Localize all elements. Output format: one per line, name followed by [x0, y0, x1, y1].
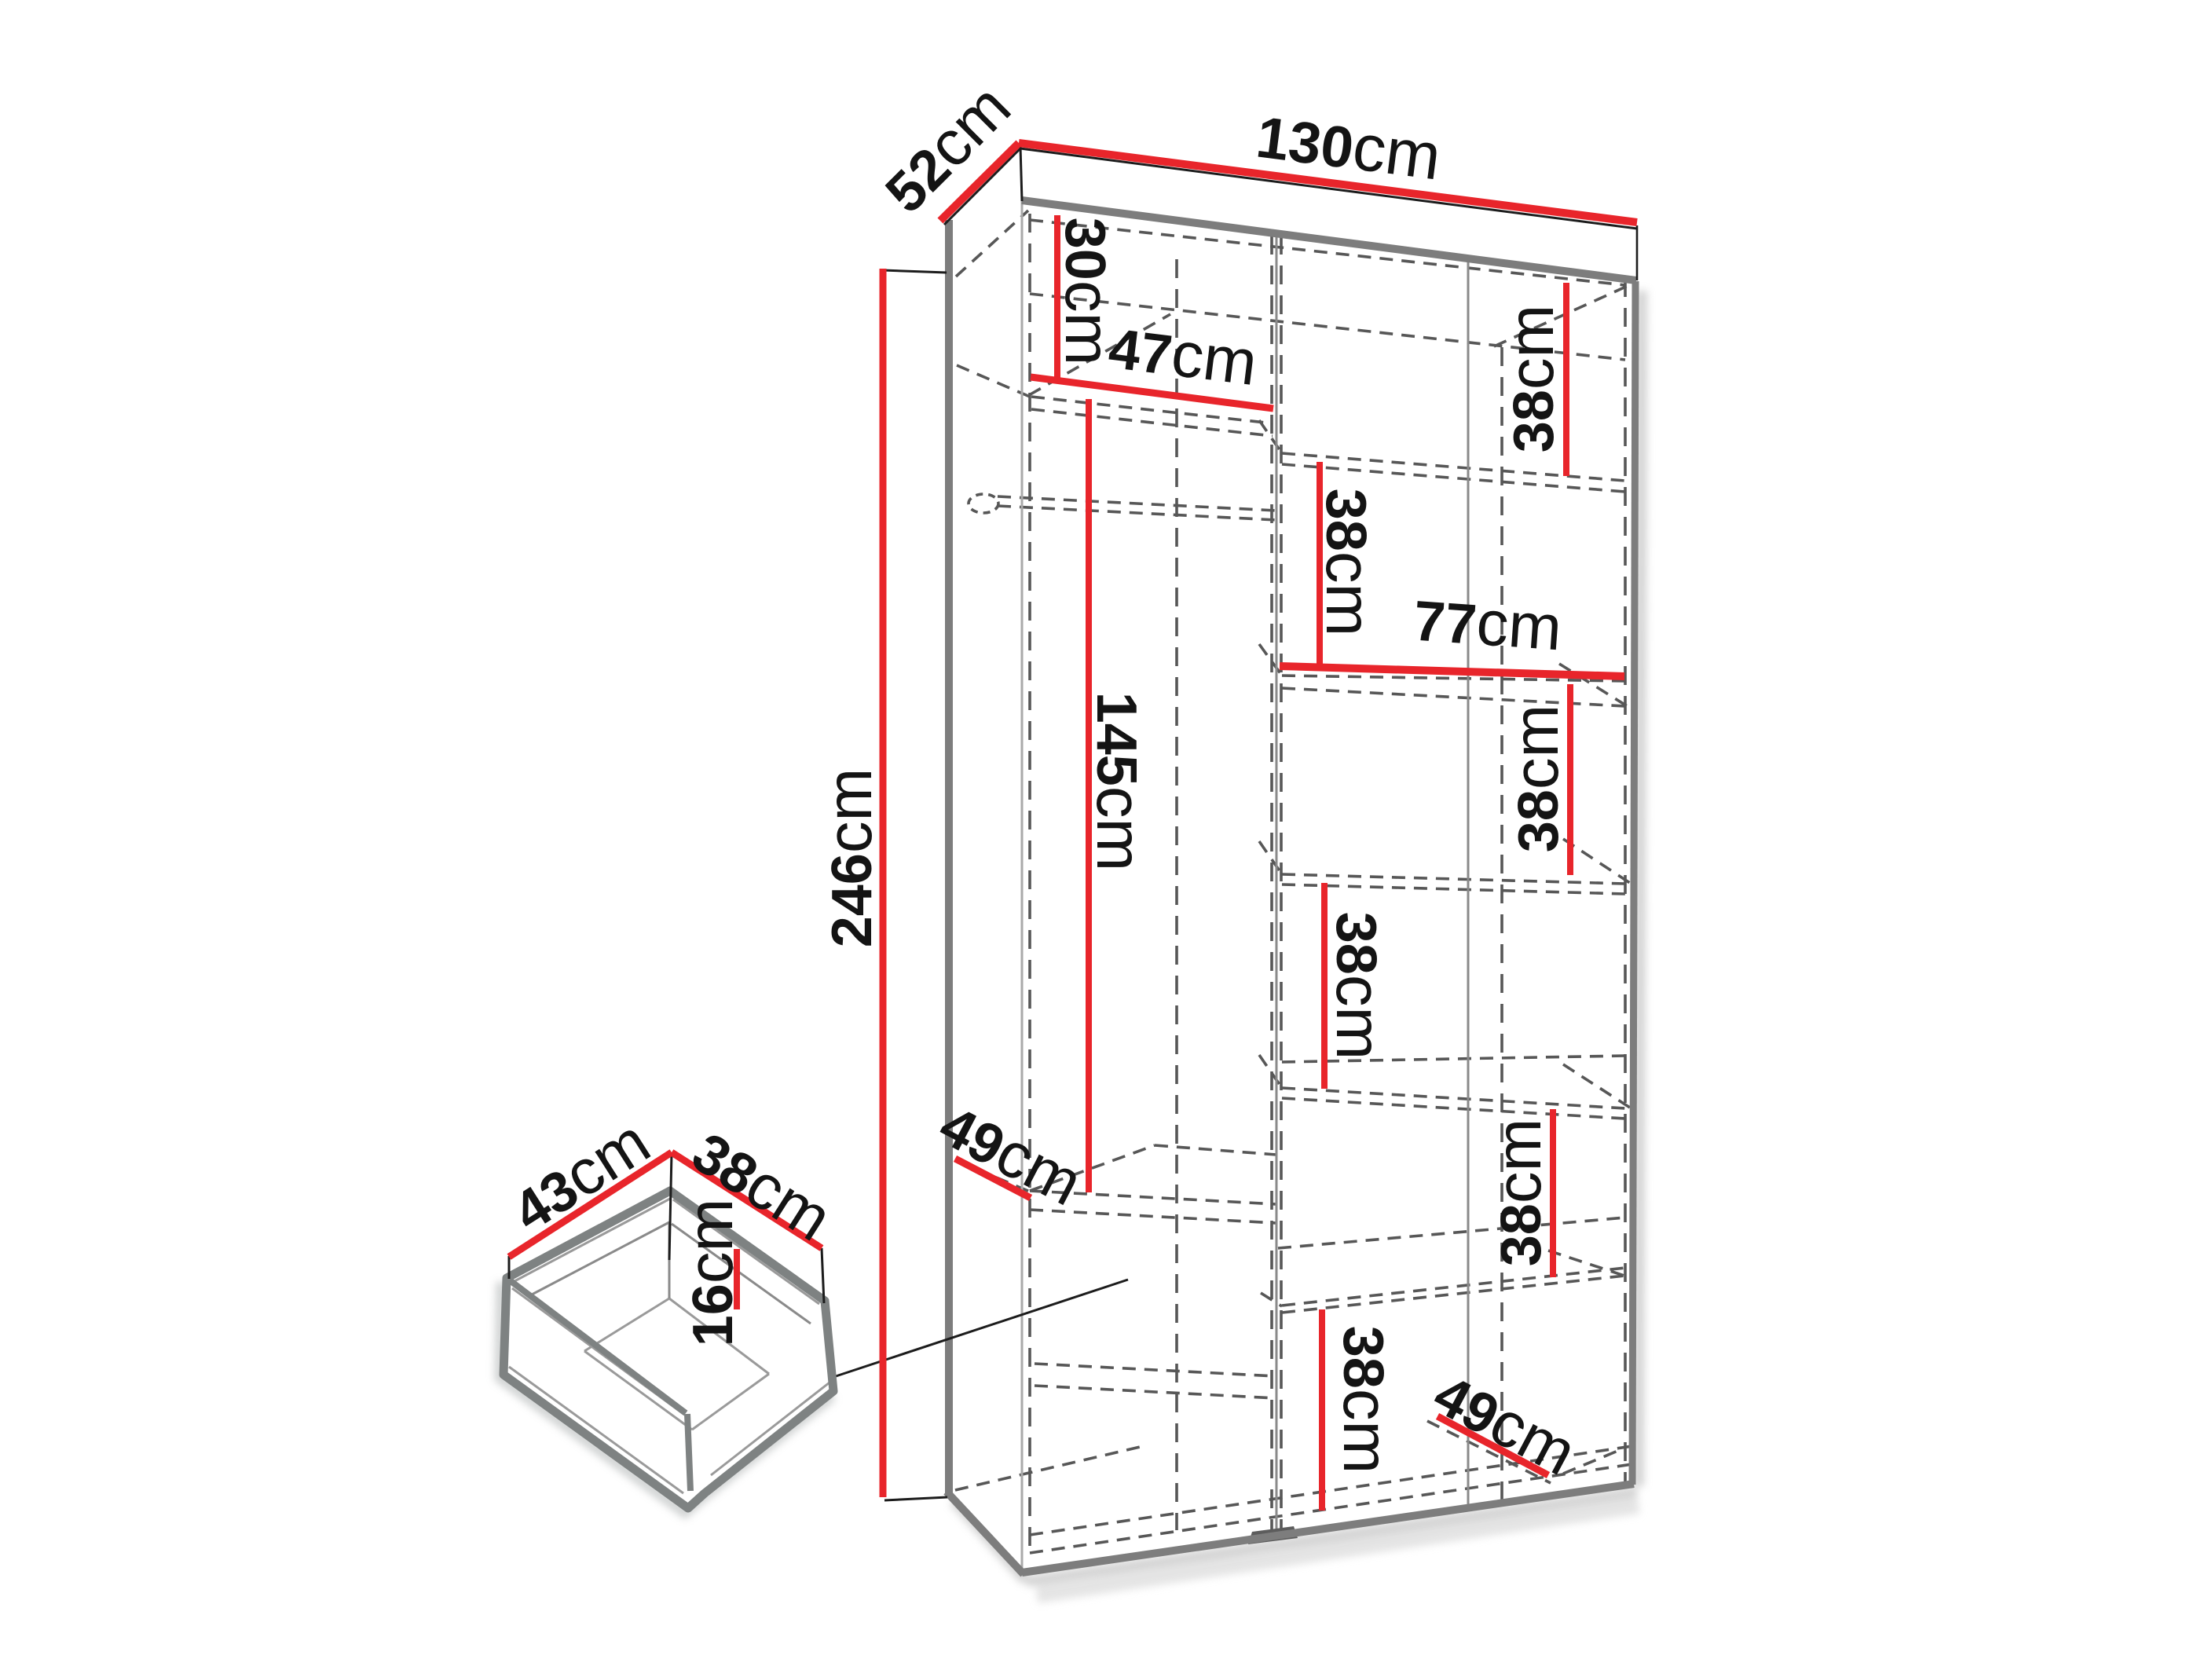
svg-text:38cm: 38cm: [1496, 305, 1567, 453]
svg-text:38cm: 38cm: [1483, 1119, 1555, 1267]
svg-text:145cm: 145cm: [1083, 692, 1155, 872]
svg-text:246cm: 246cm: [814, 768, 885, 948]
svg-text:38cm: 38cm: [1500, 705, 1572, 853]
svg-text:38cm: 38cm: [1330, 1326, 1401, 1474]
svg-text:38cm: 38cm: [1313, 489, 1384, 637]
svg-text:38cm: 38cm: [1323, 912, 1394, 1060]
svg-text:77cm: 77cm: [1412, 583, 1564, 665]
